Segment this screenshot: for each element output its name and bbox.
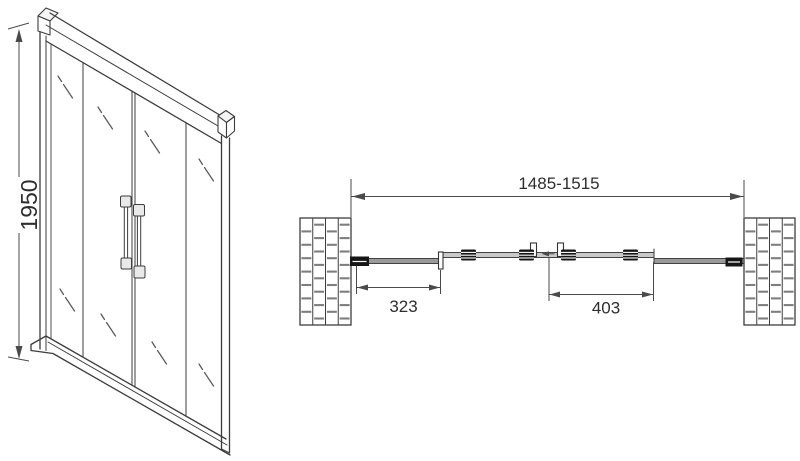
track-assembly: [350, 243, 744, 269]
glass-glint: [145, 131, 149, 137]
door-frame: [31, 8, 235, 455]
left-panel-dimension: 323: [357, 266, 441, 316]
glass-glint: [205, 168, 214, 182]
height-dimension: 1950: [8, 23, 42, 361]
glass-panels: [51, 44, 214, 416]
glass-glint: [151, 140, 160, 154]
plan-view: 1485-1515 323: [300, 174, 795, 325]
glass-glint: [104, 116, 113, 130]
glass-glint: [101, 314, 105, 320]
arrow-left-icon: [352, 193, 365, 200]
arrow-right-icon: [730, 193, 743, 200]
top-rail-front-bottom: [46, 41, 222, 144]
handle1-top-knob: [121, 196, 132, 207]
shower-door-technical-drawing: 1950: [0, 0, 800, 461]
bottom-rail-inner-line: [48, 342, 227, 445]
top-rail-outer-edge: [50, 13, 228, 120]
glass-glint: [98, 107, 102, 113]
glass-glint: [205, 373, 214, 387]
front-view: 1950: [8, 8, 235, 455]
handle2-top-knob: [134, 205, 145, 217]
drawing-svg: 1950: [0, 0, 800, 461]
overall-width-dimension: 1485-1515: [351, 174, 744, 217]
bottom-rail-top-edge: [46, 336, 226, 439]
right-wall: [744, 218, 795, 325]
arrow-left-icon: [357, 285, 368, 291]
glass-glint: [199, 159, 203, 165]
extension-tick-bottom: [8, 357, 29, 361]
glass-glint: [199, 364, 203, 370]
extension-tick-top: [8, 23, 29, 29]
arrow-left-icon: [550, 292, 561, 298]
glass-glint: [64, 85, 73, 99]
glass-glint: [58, 76, 62, 82]
left-wall: [300, 218, 351, 325]
handle1-bottom-knob: [121, 258, 132, 269]
glass-glint: [152, 342, 156, 348]
glass-glint: [158, 351, 167, 365]
handle2-bottom-knob: [134, 266, 145, 278]
panel-connector: [439, 252, 444, 269]
top-rail-front-top: [46, 25, 222, 128]
arrow-up-icon: [16, 29, 23, 42]
bottom-rail-cap-top: [31, 336, 46, 345]
arrow-right-icon: [429, 285, 440, 291]
door-handles: [121, 196, 146, 278]
left-panel-width-label: 323: [389, 297, 417, 316]
door-width-label: 403: [592, 299, 620, 318]
door-width-dimension: 403: [549, 258, 654, 318]
glass-glint: [66, 298, 75, 312]
height-dimension-label: 1950: [16, 179, 42, 230]
overall-width-label: 1485-1515: [518, 174, 599, 193]
glass-glint: [60, 289, 64, 295]
glass-reflection-marks: [58, 76, 214, 386]
glass-glint: [107, 323, 116, 337]
arrow-down-icon: [16, 346, 23, 359]
arrow-right-icon: [642, 292, 653, 298]
